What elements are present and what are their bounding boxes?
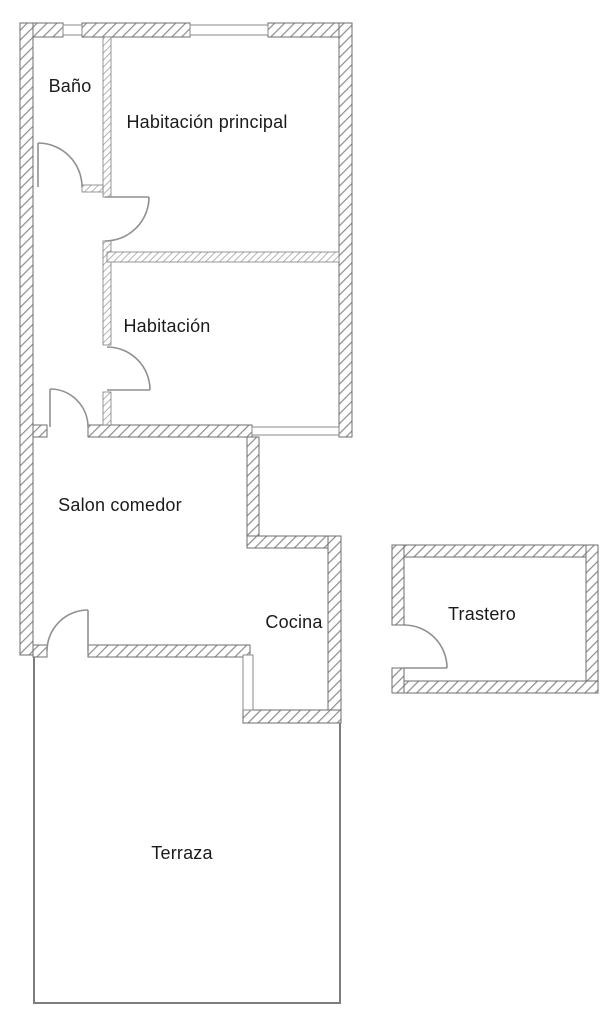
door-terraza-arc [47,610,88,651]
room-label-trastero: Trastero [448,604,516,624]
door-trastero [404,625,447,668]
wall-right-upper [339,23,352,437]
room-label-terraza: Terraza [151,843,213,863]
door-habp-arc [105,197,149,241]
room-labels: Baño Habitación principal Habitación Sal… [49,76,516,863]
door-bano [38,143,82,187]
window-top-small [63,25,82,35]
wall-bano-bottom [82,185,103,192]
wall-trastero-bottom [392,681,598,693]
wall-trastero-left-upper [392,545,404,625]
door-hab-arc [107,347,150,390]
interior-walls [82,37,339,425]
wall-bedroom-divider [107,252,339,262]
terraza-outline [34,657,340,1003]
wall-cocina-right [328,536,341,723]
wall-salon-bottom [88,645,250,657]
wall-left [20,23,33,655]
door-hall-arc [50,389,88,427]
door-trastero-arc [404,625,447,668]
room-label-bano: Baño [49,76,92,96]
wall-bano-right [103,37,111,197]
wall-hall-bottom-stub [33,425,47,437]
wall-cocina-top [247,536,341,548]
door-habitacion [107,347,150,390]
door-bano-arc [38,143,82,187]
wall-trastero-left-lower [392,668,404,693]
door-salon-terraza [47,610,88,651]
wall-bedroom-bottom [88,425,252,437]
wall-salon-bottom-left-stub [33,645,47,657]
room-label-habitacion: Habitación [123,316,210,336]
floor-plan: Baño Habitación principal Habitación Sal… [0,0,606,1024]
door-habitacion-principal [105,197,149,241]
window-top-large [190,25,268,35]
room-label-cocina: Cocina [265,612,323,632]
wall-top-mid [82,23,190,37]
wall-salon-right [247,437,259,548]
floor-plan-canvas: Baño Habitación principal Habitación Sal… [0,0,606,1024]
wall-cocina-bottom [243,710,341,723]
doors [38,143,447,668]
window-bedroom-bottom [252,427,339,435]
wall-trastero-right [586,545,598,693]
window-cocina-terraza [243,655,253,710]
wall-hall-bedroom-lower [103,392,111,425]
door-hall-salon [50,389,88,427]
room-label-salon-comedor: Salon comedor [58,495,182,515]
wall-trastero-top [392,545,598,557]
room-label-habitacion-principal: Habitación principal [126,112,287,132]
